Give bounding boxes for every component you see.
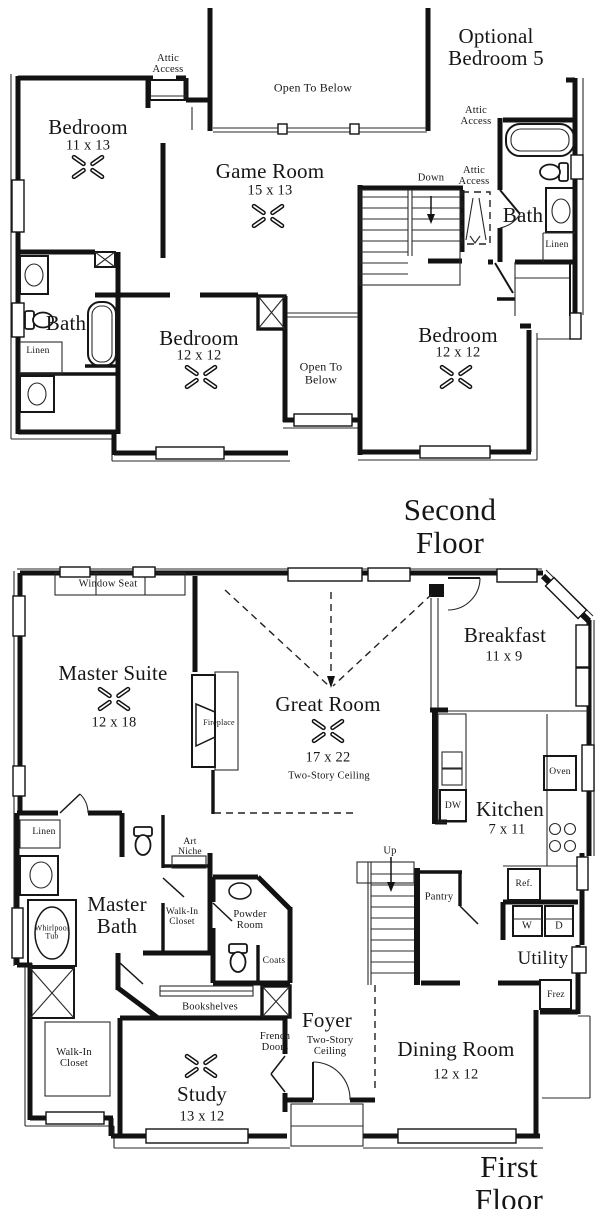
label-powder-room: Powder Room [233, 909, 266, 931]
label-linen-right: Linen [545, 240, 568, 250]
label-game-room-name: Game Room [216, 160, 325, 182]
label-linen-ff: Linen [32, 827, 55, 837]
label-bedroom2-name: Bedroom [159, 327, 239, 349]
label-great-room-name: Great Room [275, 693, 380, 715]
label-freezer: Frez [547, 990, 565, 1000]
label-optional-bedroom5: Optional Bedroom 5 [448, 25, 544, 70]
label-up: Up [383, 845, 396, 856]
label-bedroom3-dims: 12 x 12 [436, 345, 481, 360]
label-study-dims: 13 x 12 [180, 1109, 225, 1124]
label-fireplace: Fireplace [203, 719, 235, 727]
ceiling-fan-icon [74, 157, 102, 177]
label-oven: Oven [549, 767, 570, 777]
label-dining-dims: 12 x 12 [434, 1067, 479, 1082]
label-study-name: Study [177, 1083, 227, 1105]
ceiling-fan-icon [254, 206, 282, 226]
bookshelves-icon [160, 986, 253, 996]
label-breakfast-dims: 11 x 9 [486, 649, 523, 664]
label-ref: Ref. [516, 879, 533, 889]
label-foyer-name: Foyer [302, 1009, 352, 1031]
first-floor-title: First Floor [464, 1151, 555, 1209]
ceiling-fan-icon [187, 1056, 215, 1076]
railing [213, 124, 427, 317]
label-attic-access-2: Attic Access [461, 105, 492, 127]
second-floor-walls [11, 8, 583, 461]
label-dw: DW [445, 801, 461, 811]
label-whirlpool-tub: Whirlpool Tub [35, 925, 70, 942]
label-master-suite-dims: 12 x 18 [92, 715, 137, 730]
label-attic-access-1: Attic Access [153, 53, 184, 75]
label-open-to-below-mid: Open To Below [300, 360, 343, 385]
label-linen-left: Linen [26, 346, 49, 356]
entry-porch [291, 1104, 363, 1146]
label-utility: Utility [517, 949, 568, 969]
label-foyer-note: Two-Story Ceiling [307, 1035, 354, 1057]
label-bedroom3-name: Bedroom [418, 324, 498, 346]
label-bedroom1-dims: 11 x 13 [66, 138, 110, 153]
label-great-room-note: Two-Story Ceiling [288, 770, 370, 781]
bedroom3-door [495, 262, 570, 316]
label-game-room-dims: 15 x 13 [248, 183, 293, 198]
toilet-icon [540, 163, 568, 181]
label-bath-right: Bath [503, 204, 543, 226]
label-attic-access-3: Attic Access [459, 165, 490, 187]
label-breakfast-name: Breakfast [464, 624, 546, 646]
stairs-down [360, 190, 460, 285]
ceiling-fan-icon [187, 367, 215, 387]
ceiling-fan-icon [442, 367, 470, 387]
floor-plan-sheet: Attic Access Optional Bedroom 5 Open To … [0, 0, 600, 1209]
label-dining-name: Dining Room [397, 1038, 514, 1060]
attic-ladder [462, 192, 490, 244]
closet-x-icon [258, 296, 285, 329]
label-master-suite-name: Master Suite [58, 662, 167, 684]
toilet-icon [134, 827, 152, 855]
label-coats: Coats [263, 956, 286, 966]
label-walk-in-closet-1: Walk-In Closet [166, 907, 198, 927]
label-walk-in-closet-2: Walk-In Closet [56, 1047, 92, 1069]
label-kitchen-name: Kitchen [476, 798, 544, 820]
ceiling-fan-icon [100, 689, 128, 709]
label-window-seat: Window Seat [79, 578, 138, 589]
ceiling-fan-icon [314, 721, 342, 741]
vault-ceiling-lines [225, 590, 432, 688]
label-dryer: D [555, 920, 563, 931]
second-floor-title: Second Floor [375, 494, 525, 560]
label-french-doors: French Doors [260, 1031, 290, 1053]
stairs-up [357, 857, 414, 985]
label-bath-left: Bath [46, 312, 86, 334]
label-down: Down [418, 172, 444, 183]
label-art-niche: Art Niche [178, 837, 202, 857]
label-washer: W [522, 920, 532, 931]
label-bedroom1-name: Bedroom [48, 116, 128, 138]
closet-x-icon [262, 986, 290, 1017]
label-master-bath: Master Bath [87, 893, 147, 938]
toilet-icon [229, 944, 247, 972]
attic-closet [150, 80, 192, 130]
label-kitchen-dims: 7 x 11 [489, 822, 526, 837]
label-open-to-below-top: Open To Below [274, 82, 352, 95]
label-pantry: Pantry [425, 891, 454, 902]
label-bedroom2-dims: 12 x 12 [177, 348, 222, 363]
label-bookshelves: Bookshelves [182, 1001, 238, 1012]
label-great-room-dims: 17 x 22 [306, 750, 351, 765]
